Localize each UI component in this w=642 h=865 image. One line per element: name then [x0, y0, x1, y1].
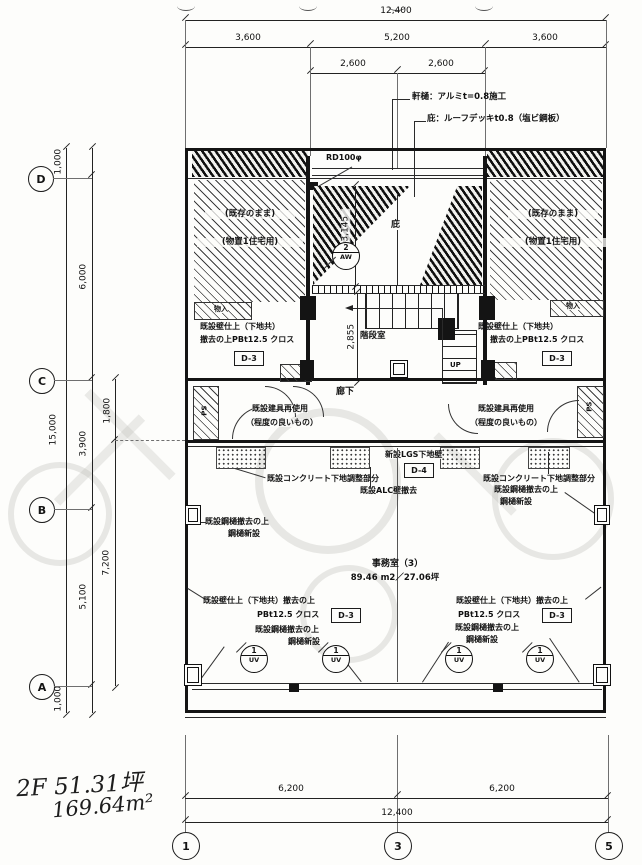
note-gutter-left-1: 既設鋼樋撤去の上 [205, 518, 269, 526]
stair-arrow-head [345, 305, 353, 311]
column-inner [393, 363, 405, 375]
window-mark-uv: 1 UV [445, 645, 473, 673]
column [185, 505, 201, 525]
detail-box-label: D-3 [549, 354, 565, 363]
detail-box-d4: D-4 [404, 463, 434, 478]
note-eaves-gutter: 軒樋：アルミt=0.8施工 [412, 93, 506, 102]
note-existing-right-1: (既存のまま) [508, 210, 598, 219]
dim-line-bottom-segments [185, 798, 608, 799]
dim-line-left-inner [115, 379, 116, 686]
note-gutter-br-1: 既設鋼樋撤去の上 [455, 624, 519, 632]
note-concrete-left: 既設コンクリート下地調整部分 [267, 475, 379, 483]
dim-line-bottom-overall [185, 822, 608, 823]
grid-bubble-b: B [29, 497, 55, 523]
grid-line [54, 509, 92, 510]
detail-box-label: D-4 [411, 466, 427, 475]
window-mark-uv: 1 UV [322, 645, 350, 673]
dim-line-top-segments [185, 47, 606, 48]
detail-box-d3: D-3 [542, 351, 572, 366]
dim-stair-2855: 2,855 [347, 317, 356, 357]
column-inner [597, 508, 607, 522]
column-inner [188, 508, 198, 522]
column [390, 360, 408, 378]
dim-top-sub-right: 2,600 [411, 60, 471, 69]
grid-label-a: A [38, 681, 47, 694]
extension-line [606, 20, 607, 148]
floor-plan-page: 12,400 3,600 5,200 3,600 2,600 2,600 軒樋：… [0, 0, 642, 865]
dim-left-1800: 1,800 [103, 391, 112, 431]
extension-line [310, 47, 311, 156]
leader-line [548, 452, 549, 474]
dim-top-right: 3,600 [515, 34, 575, 43]
note-gutter-right-1: 既設鋼樋撤去の上 [494, 486, 558, 494]
dim-left-3900: 3,900 [79, 424, 88, 464]
revision-mark [299, 1, 317, 11]
note-gutter-bc-1: 既設鋼樋撤去の上 [255, 626, 319, 634]
substrate-strip [216, 447, 266, 469]
dim-line-left-segments [92, 148, 93, 713]
dim-left-7200: 7,200 [102, 543, 111, 583]
leader-line [392, 99, 410, 100]
detail-box-label: D-3 [338, 611, 354, 620]
watermark-ring [8, 462, 112, 566]
detail-box-label: D-3 [241, 354, 257, 363]
column [184, 664, 202, 686]
note-wall-finish-left-1: 既設壁仕上（下地共） [200, 323, 280, 331]
grid-bubble-1: 1 [172, 832, 200, 860]
window-mark-aw-code: AW [333, 253, 359, 261]
note-wall-finish-br-1: 既設壁仕上（下地共）撤去の上 [456, 597, 568, 605]
dim-top-center: 5,200 [367, 34, 427, 43]
note-door-reuse-left-2: （程度の良いもの） [246, 419, 318, 427]
dim-bottom-left: 6,200 [261, 785, 321, 794]
eaves-hatch-left [192, 151, 308, 177]
note-stair: 階段室 [360, 332, 386, 341]
window-wall-line [192, 683, 602, 684]
grid-bubble-d: D [28, 166, 54, 192]
wall-line [188, 178, 603, 179]
grid-label-1: 1 [182, 840, 190, 853]
window-mark-uv-code: UV [241, 656, 267, 664]
note-wall-finish-left-2: 撤去の上PBt12.5 クロス [200, 336, 294, 344]
column-inner [596, 667, 608, 683]
dim-bottom-overall: 12,400 [367, 809, 427, 818]
dim-line-stair [357, 293, 358, 381]
note-up: UP [450, 362, 461, 369]
note-existing-right-2: (物置1住宅用) [500, 238, 606, 247]
note-closet-right: 物入 [566, 303, 580, 310]
stair-arrow-line [442, 308, 443, 360]
note-wall-finish-bl-1: 既設壁仕上（下地共）撤去の上 [203, 597, 315, 605]
note-ps-left: PS [201, 399, 208, 423]
gutter-line [312, 168, 485, 169]
note-door-reuse-right-1: 既設建具再使用 [478, 405, 534, 413]
grid-bubble-3: 3 [384, 832, 412, 860]
window-mark-uv-number: 1 [323, 646, 349, 656]
dim-left-1000-top: 1,000 [54, 142, 63, 182]
extension-line [115, 440, 185, 441]
column-inner [187, 667, 199, 683]
column [593, 664, 611, 686]
note-gutter-left-2: 鋼樋新設 [228, 530, 260, 538]
note-existing-left-2: (物置1住宅用) [197, 238, 303, 247]
note-canopy-spec: 庇：ルーフデッキt0.8（塩ビ鋼板） [427, 115, 565, 124]
leader-line [370, 467, 371, 487]
grid-label-3: 3 [394, 840, 402, 853]
detail-box-label: D-3 [549, 611, 565, 620]
eaves-hatch-right [487, 151, 603, 177]
note-ps-right: PS [586, 395, 593, 419]
note-wall-finish-br-2: PBt12.5 クロス [458, 611, 520, 619]
stair-arrow-line [352, 308, 442, 309]
wall-junction [300, 296, 316, 320]
note-lgs-wall: 新設LGS下地壁 [385, 451, 442, 459]
leader-line [414, 121, 426, 122]
dim-tick [394, 66, 401, 73]
wall-junction [481, 360, 495, 380]
dim-left-6000: 6,000 [79, 257, 88, 297]
extension-line [185, 20, 186, 148]
wall [483, 156, 487, 385]
wall-junction [479, 296, 495, 320]
window-mark-uv: 1 UV [526, 645, 554, 673]
grid-label-d: D [36, 173, 45, 186]
note-gutter-br-2: 鋼樋新設 [466, 636, 498, 644]
substrate-strip [330, 447, 370, 469]
grid-bubble-5: 5 [595, 832, 623, 860]
dim-top-overall: 12,400 [366, 7, 426, 16]
grid-label-b: B [38, 504, 46, 517]
wall-junction [300, 360, 314, 380]
window-mullion [493, 684, 503, 692]
column [594, 505, 610, 525]
window-mark-uv: 1 UV [240, 645, 268, 673]
window-mark-aw: 2 AW [332, 242, 360, 270]
detail-box-d3: D-3 [331, 608, 361, 623]
note-office-name: 事務室（3） [350, 560, 445, 569]
dim-top-sub-left: 2,600 [323, 60, 383, 69]
substrate-strip [528, 447, 570, 469]
revision-mark [177, 1, 195, 11]
note-door-reuse-left-1: 既設建具再使用 [252, 405, 308, 413]
note-corridor: 廊下 [336, 388, 354, 397]
dim-bottom-right: 6,200 [472, 785, 532, 794]
detail-box-d3: D-3 [542, 608, 572, 623]
dim-left-5100: 5,100 [79, 577, 88, 617]
dim-top-left: 3,600 [218, 34, 278, 43]
stair-wall [438, 318, 455, 340]
center-line [397, 195, 398, 285]
window-mark-aw-number: 2 [333, 243, 359, 253]
dim-tick [307, 40, 314, 47]
note-gutter-bc-2: 鋼樋新設 [288, 638, 320, 646]
wall [306, 156, 310, 385]
window-mark-uv-code: UV [323, 656, 349, 664]
note-office-area: 89.46 m2／27.06坪 [340, 574, 450, 583]
window-mark-uv-code: UV [446, 656, 472, 664]
window-mark-uv-number: 1 [527, 646, 553, 656]
note-canopy: 庇 [391, 221, 400, 230]
note-wall-finish-right-2: 撤去の上PBt12.5 クロス [490, 336, 584, 344]
substrate-strip [440, 447, 480, 469]
note-roof-drain: RD100φ [326, 154, 362, 162]
dim-left-1000-bottom: 1,000 [54, 679, 63, 719]
grid-line [54, 686, 92, 687]
grid-label-c: C [38, 375, 46, 388]
note-closet-left: 物入 [214, 306, 228, 313]
building-edge-line [185, 717, 606, 718]
grid-line [53, 178, 92, 179]
window-mark-uv-number: 1 [446, 646, 472, 656]
detail-box-d3: D-3 [234, 351, 264, 366]
grid-bubble-a: A [29, 674, 55, 700]
wall [188, 440, 603, 443]
note-wall-finish-right-1: 既設壁仕上（下地共） [478, 323, 558, 331]
dim-line-canopy [355, 186, 356, 285]
grid-bubble-c: C [29, 368, 55, 394]
note-existing-left-1: (既存のまま) [205, 210, 295, 219]
dim-tick [482, 40, 489, 47]
revision-mark [475, 1, 493, 11]
note-alc: 既設ALC壁撤去 [360, 487, 417, 495]
window-mark-uv-number: 1 [241, 646, 267, 656]
note-wall-finish-bl-2: PBt12.5 クロス [257, 611, 319, 619]
note-gutter-right-2: 鋼樋新設 [500, 498, 532, 506]
grid-line [54, 380, 92, 381]
window-wall-line [192, 689, 602, 690]
window-mullion [289, 684, 299, 692]
canopy-louver [312, 286, 485, 293]
note-concrete-right: 既設コンクリート下地調整部分 [483, 475, 595, 483]
dim-left-overall: 15,000 [49, 408, 58, 452]
window-mark-uv-code: UV [527, 656, 553, 664]
wall [188, 378, 603, 381]
dim-line-left-overall [66, 148, 67, 713]
dim-line-top-overall [185, 20, 606, 21]
note-door-reuse-right-2: （程度の良いもの） [470, 419, 542, 427]
grid-label-5: 5 [605, 840, 613, 853]
